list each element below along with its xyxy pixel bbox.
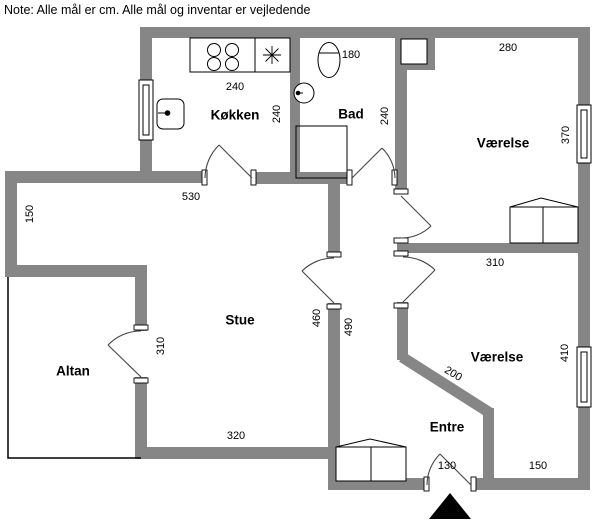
- door-jambs-layer: [134, 170, 476, 491]
- dim-label-stue-height: 460: [311, 309, 323, 327]
- vaerelse-bottom-window: [577, 347, 591, 407]
- room-label-koekken: Køkken: [211, 108, 260, 123]
- room-label-vaerelse-bottom: Værelse: [471, 350, 524, 365]
- room-label-altan: Altan: [56, 364, 90, 379]
- dim-label-vaerelse-top-depth: 370: [560, 126, 572, 144]
- fixtures-layer: [157, 38, 578, 481]
- extractor-star-icon: [263, 46, 281, 64]
- kitchen-door: [205, 145, 252, 178]
- vaerelse-top-door: [401, 196, 431, 238]
- wall-nook-bottom: [5, 265, 147, 277]
- wall-middle-lower: [328, 303, 340, 447]
- bad-sink-icon: [294, 83, 314, 103]
- wardrobe-vaerelse-top-icon: [510, 198, 578, 243]
- kitchen-sink-icon: [157, 99, 184, 129]
- entrance-arrow-icon: [429, 493, 471, 519]
- bad-door: [352, 148, 395, 178]
- room-label-bad: Bad: [338, 107, 364, 122]
- vaerelse-top-window: [577, 105, 591, 163]
- dim-label-koekken-width: 240: [226, 81, 244, 93]
- toilet-icon: [318, 43, 340, 78]
- wall-room-divider: [397, 243, 578, 253]
- doors-layer: [108, 145, 471, 485]
- wardrobe-entre-icon: [336, 439, 406, 481]
- kitchen-window: [139, 80, 153, 140]
- wall-vaerelse-bottom-left: [397, 302, 408, 360]
- altan-door: [108, 331, 141, 377]
- dim-label-bottom-right-width: 150: [529, 460, 547, 472]
- stue-door: [302, 258, 334, 303]
- dim-label-nook-depth: 150: [24, 205, 36, 223]
- wall-diagonal-vertical: [483, 408, 494, 478]
- wall-bottom-right: [473, 478, 590, 490]
- wall-nook-top: [5, 171, 205, 183]
- dim-label-vaerelse-bot-depth: 410: [559, 344, 571, 362]
- wall-right: [578, 27, 590, 490]
- dim-label-stue-bottom-width: 320: [227, 430, 245, 442]
- room-label-vaerelse-top: Værelse: [477, 136, 530, 151]
- wall-stue-bottom: [135, 447, 340, 459]
- dim-label-bad-depth: 240: [379, 107, 391, 125]
- dim-label-entrance-width: 130: [438, 460, 456, 472]
- note-text: Note: Alle mål er cm. Alle mål og invent…: [4, 3, 310, 17]
- vaerelse-bottom-door: [403, 257, 435, 302]
- wall-middle-upper: [328, 184, 340, 252]
- dim-label-koekken-depth: 240: [271, 105, 283, 123]
- wall-left-outer: [5, 171, 17, 277]
- room-label-stue: Stue: [225, 313, 254, 328]
- wall-kitchen-bad-divider: [290, 38, 300, 184]
- wall-top: [140, 27, 590, 38]
- dim-label-hall-height: 490: [343, 318, 355, 336]
- dim-label-altan-door: 310: [155, 337, 167, 355]
- floorplan-drawing: [0, 0, 600, 526]
- wall-stue-left-upper: [135, 265, 147, 331]
- shaft-inset: [401, 39, 427, 64]
- dim-label-vaerelse-top-width: 280: [499, 42, 517, 54]
- dim-label-stue-top-width: 530: [182, 191, 200, 203]
- wall-stue-left-lower: [135, 377, 147, 459]
- shower-icon: [296, 126, 347, 178]
- room-label-entre: Entre: [430, 420, 465, 435]
- floorplan: Note: Alle mål er cm. Alle mål og invent…: [0, 0, 600, 526]
- dim-label-bad-width: 180: [342, 49, 360, 61]
- dim-label-divider-width: 310: [486, 257, 504, 269]
